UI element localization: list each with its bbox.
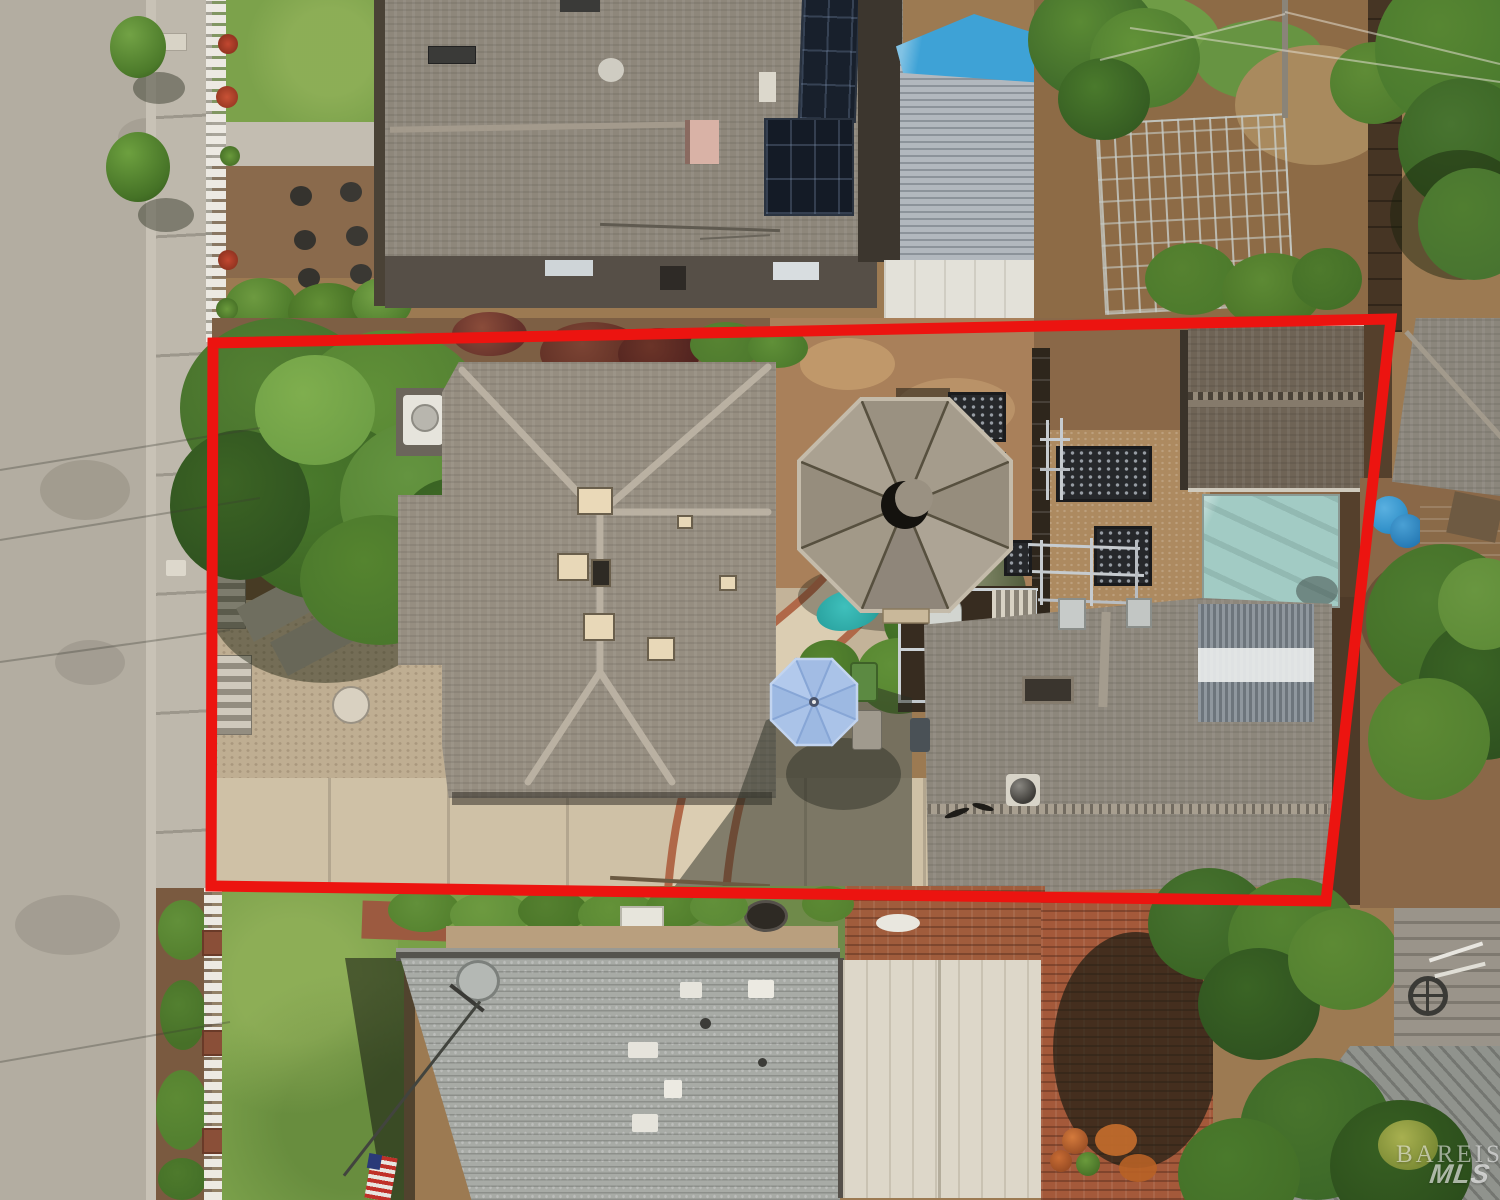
tree-foliage	[1058, 58, 1150, 140]
tree-foliage	[1368, 678, 1490, 800]
stone-table	[332, 686, 370, 724]
plant-pot	[294, 230, 316, 250]
plant-pot	[346, 226, 368, 246]
metal-roof-section	[900, 58, 1034, 262]
main-house-eave-shadow	[452, 792, 772, 805]
roof-vent-white	[664, 1080, 682, 1098]
main-house-left-wing	[398, 495, 446, 665]
shed-drip-edge	[1188, 488, 1364, 492]
shrub	[156, 1070, 208, 1150]
skylight	[1126, 598, 1152, 628]
roof-vent-white	[680, 982, 702, 998]
shrub	[158, 900, 208, 960]
brick-strip	[845, 886, 1045, 964]
bin-dark	[910, 718, 930, 752]
solar-panel-array	[764, 118, 854, 216]
raised-garden-bed	[1056, 446, 1152, 502]
plant-pot	[290, 186, 312, 206]
roof-vent-white	[759, 72, 776, 102]
trash-bin-green	[850, 662, 878, 702]
shed-roof	[1188, 324, 1364, 492]
roof-vent-dark	[758, 1058, 767, 1067]
roof-vent-dark	[700, 1018, 711, 1029]
carport-seam	[938, 960, 941, 1198]
flag-union	[367, 1153, 382, 1170]
shed-dentil-band	[1188, 392, 1364, 400]
flower-pot-red	[216, 86, 238, 108]
terracotta-pot	[1050, 1150, 1072, 1172]
main-house-roof	[442, 362, 776, 798]
bed-shadow	[896, 388, 950, 503]
top-house-window	[545, 260, 593, 276]
plant-pot	[340, 182, 362, 202]
top-house-door	[660, 266, 686, 290]
umbrella-shadow	[786, 738, 901, 810]
tarp-stain	[1296, 576, 1338, 606]
street-stain	[55, 640, 125, 685]
patio-table-white	[876, 914, 920, 932]
shed-drip-edge	[1188, 322, 1364, 326]
carport-roof	[843, 960, 1041, 1198]
sidewalk-shrub	[110, 16, 166, 78]
blue-slide	[1390, 514, 1424, 548]
roof-vent-white	[632, 1114, 658, 1132]
hedge	[1292, 248, 1362, 310]
roof-gap-shadow	[858, 0, 902, 262]
mini-picket-fence	[956, 496, 984, 558]
utility-pole	[1282, 0, 1288, 118]
flower-pot-red	[218, 34, 238, 54]
flower-pot-green	[216, 298, 238, 320]
deck-rail-post	[898, 588, 901, 703]
flower-pot-green	[220, 146, 240, 166]
metal-roof-white-band	[1198, 648, 1314, 682]
roof-vent-white	[628, 1042, 658, 1058]
pipe-rail	[1040, 438, 1070, 441]
pink-skylight	[685, 120, 719, 164]
shrub	[158, 1158, 206, 1200]
wheel-spoke	[1426, 978, 1429, 1014]
pipe-post	[1060, 418, 1063, 500]
street-stain	[40, 460, 130, 520]
pipe-post	[1040, 540, 1043, 605]
orange-flowers	[1119, 1154, 1157, 1182]
solar-panel-array	[798, 0, 860, 123]
pipe-post	[1135, 540, 1138, 605]
mls-watermark: BAREIS MLS	[1396, 1142, 1500, 1188]
roof-window-dark	[1022, 676, 1074, 704]
tree-foliage	[255, 355, 375, 465]
raised-garden-bed	[948, 392, 1006, 442]
bin-gray	[852, 710, 882, 750]
hose-coil	[744, 900, 788, 932]
entry-steps	[216, 655, 252, 735]
raised-garden-bed	[950, 452, 1006, 500]
shrub	[160, 980, 206, 1050]
watermark-line2: MLS	[1428, 1161, 1500, 1188]
vent-ball	[1010, 778, 1036, 804]
pipe-post	[1046, 420, 1049, 500]
sidewalk-paint-mark	[166, 560, 186, 576]
shrub-shadow	[138, 198, 194, 232]
bush	[802, 886, 854, 922]
tree-foliage	[1288, 908, 1400, 1010]
top-house-skylight	[560, 0, 600, 12]
ac-fan	[411, 404, 439, 432]
rn-roof	[1392, 318, 1500, 496]
top-house-window	[773, 262, 819, 280]
roof-vent-white	[748, 980, 774, 998]
aerial-photo: BAREIS MLS	[0, 0, 1500, 1200]
white-flat-roof	[884, 260, 1036, 322]
skylight	[1058, 598, 1086, 630]
flower-pot-red	[218, 250, 238, 270]
red-shrub	[452, 312, 527, 356]
street-stain	[15, 895, 120, 955]
orange-flowers	[1095, 1124, 1137, 1156]
bush	[690, 888, 748, 926]
green-pot-plant	[1076, 1152, 1100, 1176]
raised-garden-bed	[1094, 526, 1152, 586]
terracotta-pot	[1062, 1128, 1088, 1154]
pipe-rail	[1040, 468, 1070, 471]
satellite-dish-small	[598, 58, 624, 82]
top-house-skylight	[428, 46, 476, 64]
shed-ridge	[1188, 400, 1364, 407]
sidewalk-shrub	[106, 132, 170, 202]
pipe-post	[1090, 538, 1093, 606]
dirt-patch	[800, 338, 895, 390]
